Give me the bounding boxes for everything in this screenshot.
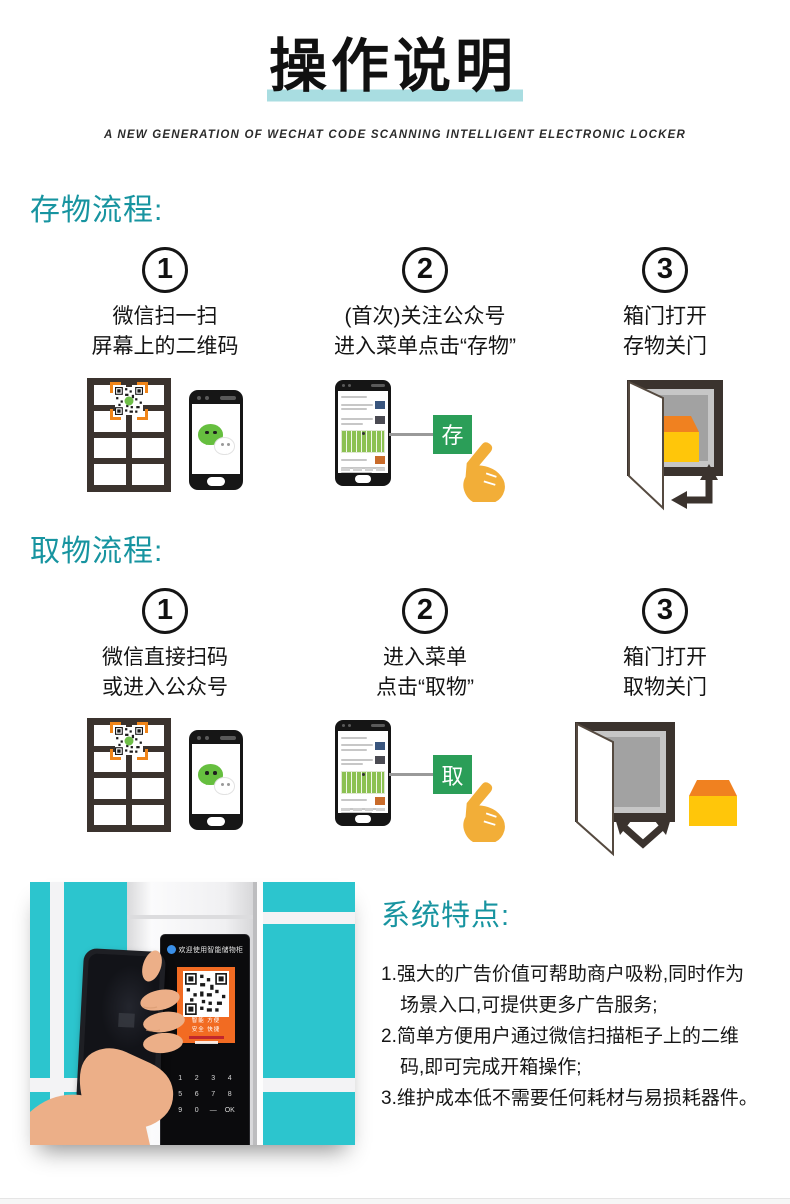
keypad-key: 4 (222, 1075, 239, 1082)
step-number-badge: 3 (642, 247, 688, 293)
step-caption: 微信直接扫码 或进入公众号 (102, 643, 228, 704)
phone-tap-pick-illustration: 取 (325, 716, 525, 864)
qr-caption: 智能 方便 (181, 1017, 231, 1025)
step-caption: (首次)关注公众号 进入菜单点击“存物” (334, 302, 516, 363)
locker-door-seam (50, 882, 64, 1145)
door-open-store-illustration (585, 376, 745, 524)
feature-item: 3.维护成本低不需要任何耗材与易损耗器件。 (381, 1084, 785, 1115)
open-door-icon (577, 724, 613, 854)
keypad-key: OK (222, 1107, 239, 1114)
keypad-key: 0 (189, 1107, 206, 1114)
phone-icon (335, 720, 391, 826)
keypad: 1 2 3 4 5 6 7 8 9 0 — OK (172, 1075, 238, 1114)
features-list: 1.强大的广告价值可帮助商户吸粉,同时作为 场景入口,可提供更多广告服务; 2.… (381, 960, 785, 1114)
keypad-key: 1 (172, 1075, 189, 1082)
tap-hand-icon (457, 778, 513, 842)
wechat-logo-icon (198, 764, 234, 794)
keypad-key: — (205, 1107, 222, 1114)
locker-grid-icon (87, 378, 171, 492)
qr-code-icon (115, 727, 143, 755)
step-number-badge: 3 (642, 588, 688, 634)
step-caption: 箱门打开 存物关门 (623, 302, 707, 363)
status-text-bar (189, 1036, 224, 1039)
keypad-key: 8 (222, 1091, 239, 1098)
locker-status-grid (341, 430, 385, 453)
open-door-icon (629, 382, 663, 508)
phone-icon (189, 730, 243, 830)
qr-scan-frame-icon (110, 382, 148, 420)
store-steps-row: 1 微信扫一扫 屏幕上的二维码 (0, 247, 790, 524)
keypad-key: 7 (205, 1091, 222, 1098)
locker-scan-illustration (87, 716, 243, 864)
pick-section-heading: 取物流程: (30, 526, 790, 570)
callout-line (389, 773, 435, 776)
panel-qr-code-icon (183, 971, 229, 1017)
store-step-2: 2 (首次)关注公众号 进入菜单点击“存物” 存 (300, 247, 550, 524)
step-number-badge: 1 (142, 588, 188, 634)
panel-logo-icon (167, 945, 176, 954)
pick-step-1: 1 微信直接扫码 或进入公众号 (30, 588, 300, 865)
step-caption: 箱门打开 取物关门 (623, 643, 707, 704)
panel-header: 欢迎使用智能储物柜 (161, 944, 249, 954)
store-section-heading: 存物流程: (30, 185, 790, 229)
package-icon (689, 780, 737, 826)
keypad-key: 3 (205, 1075, 222, 1082)
qr-code-icon (115, 387, 143, 415)
phone-tap-store-illustration: 存 (325, 376, 525, 524)
qr-caption: 安全 快捷 (181, 1026, 231, 1034)
pick-steps-row: 1 微信直接扫码 或进入公众号 (0, 588, 790, 865)
feature-item: 2.简单方便用户通过微信扫描柜子上的二维 码,即可完成开箱操作; (381, 1022, 785, 1084)
phone-icon (335, 380, 391, 486)
panel-title: 欢迎使用智能储物柜 (179, 944, 244, 954)
store-step-3: 3 箱门打开 存物关门 (550, 247, 780, 524)
locker-grid-icon (87, 718, 171, 832)
wechat-account-screen (338, 391, 388, 473)
qr-scan-frame-icon (110, 722, 148, 760)
locker-status-grid (341, 771, 385, 794)
held-phone (76, 948, 166, 1110)
features-heading: 系统特点: (381, 892, 785, 934)
phone-icon (189, 390, 243, 490)
wechat-logo-icon (198, 424, 234, 454)
door-open-pick-illustration (567, 716, 763, 864)
panel-qr-card: 智能 方便 安全 快捷 (177, 967, 235, 1043)
locker-door-seam (263, 912, 355, 924)
step-number-badge: 2 (402, 588, 448, 634)
bottom-section: 欢迎使用智能储物柜 智能 方便 安全 快捷 1 2 3 4 5 6 7 8 (30, 882, 790, 1145)
keypad-key: 6 (189, 1091, 206, 1098)
wechat-account-screen (338, 731, 388, 813)
page-subtitle: A NEW GENERATION OF WECHAT CODE SCANNING… (0, 129, 790, 141)
page-bottom-divider (0, 1198, 790, 1204)
keypad-key: 5 (172, 1091, 189, 1098)
keypad-key: 2 (189, 1075, 206, 1082)
features-column: 系统特点: 1.强大的广告价值可帮助商户吸粉,同时作为 场景入口,可提供更多广告… (381, 882, 785, 1145)
locker-scan-photo: 欢迎使用智能储物柜 智能 方便 安全 快捷 1 2 3 4 5 6 7 8 (30, 882, 355, 1145)
title-block: 操作说明 A NEW GENERATION OF WECHAT CODE SCA… (0, 0, 790, 141)
store-step-1: 1 微信扫一扫 屏幕上的二维码 (30, 247, 300, 524)
step-number-badge: 1 (142, 247, 188, 293)
step-number-badge: 2 (402, 247, 448, 293)
page-title: 操作说明 (267, 34, 523, 105)
locker-scan-illustration (87, 376, 243, 524)
callout-line (389, 433, 435, 436)
tap-hand-icon (457, 438, 513, 502)
locker-door-seam (263, 1078, 355, 1092)
pick-step-2: 2 进入菜单 点击“取物” 取 (300, 588, 550, 865)
timestamp-bar (195, 1041, 218, 1044)
step-caption: 进入菜单 点击“取物” (376, 643, 474, 704)
pick-step-3: 3 箱门打开 取物关门 (550, 588, 780, 865)
feature-item: 1.强大的广告价值可帮助商户吸粉,同时作为 场景入口,可提供更多广告服务; (381, 960, 785, 1022)
step-caption: 微信扫一扫 屏幕上的二维码 (92, 302, 239, 363)
keypad-key: 9 (172, 1107, 189, 1114)
control-panel: 欢迎使用智能储物柜 智能 方便 安全 快捷 1 2 3 4 5 6 7 8 (160, 934, 250, 1145)
